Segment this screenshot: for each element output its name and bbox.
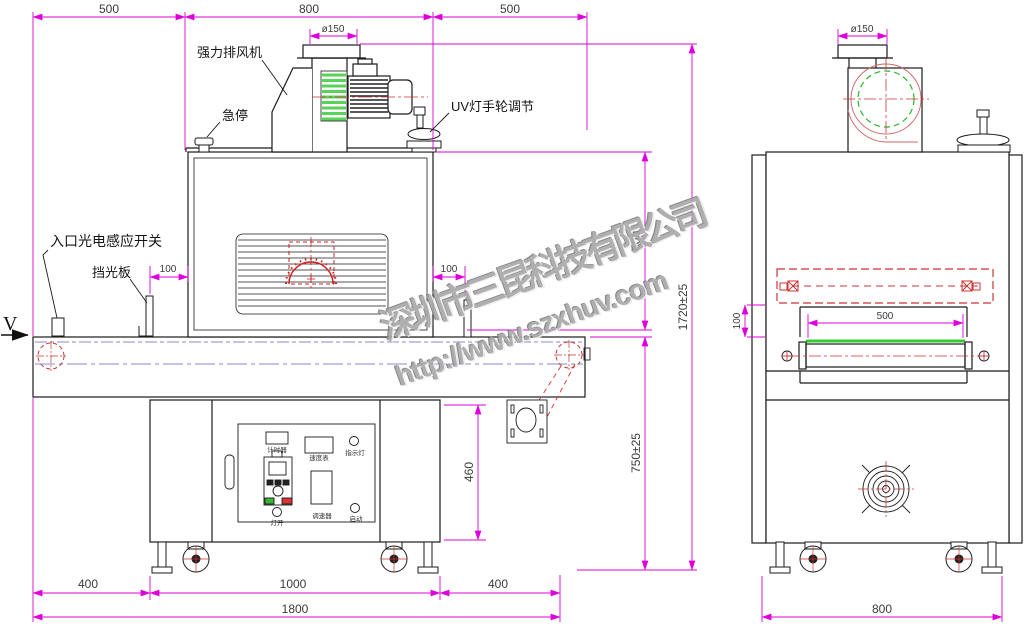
conveyor-table bbox=[33, 337, 590, 397]
dim-duct-side: ø150 bbox=[851, 24, 874, 35]
dim-side-base-width: 800 bbox=[872, 602, 892, 616]
dim-duct-front: ø150 bbox=[322, 24, 345, 35]
uv-lamp-handwheel bbox=[407, 107, 441, 152]
side-feet bbox=[770, 542, 1002, 573]
dim-top-center: 800 bbox=[299, 2, 319, 16]
label-uv-handwheel: UV灯手轮调节 bbox=[451, 99, 534, 114]
roller-bolt-left bbox=[782, 351, 792, 361]
caster-side-right bbox=[946, 542, 972, 572]
label-light-shield: 挡光板 bbox=[92, 265, 131, 280]
caster-front-right bbox=[381, 542, 407, 572]
label-speed-controller: 调速器 bbox=[312, 511, 332, 520]
light-shield-right bbox=[464, 300, 471, 337]
roller-bolt-right bbox=[979, 351, 989, 361]
label-indicator-light: 指示灯 bbox=[345, 448, 365, 457]
emergency-stop-button bbox=[195, 138, 213, 152]
drawing-canvas: 500 800 500 ø150 100 100 600 1720±25 750… bbox=[0, 0, 1024, 632]
label-exhaust-fan: 强力排风机 bbox=[197, 45, 262, 60]
dim-belt-width: 500 bbox=[877, 311, 894, 322]
direction-mark: V bbox=[1, 313, 28, 335]
control-panel bbox=[238, 424, 375, 522]
direction-letter: V bbox=[3, 313, 18, 335]
dim-shield-right: 100 bbox=[441, 264, 458, 275]
caster-side-left bbox=[800, 542, 826, 572]
dim-total-height: 1720±25 bbox=[676, 283, 690, 330]
blower-wheel bbox=[321, 71, 347, 121]
label-start: 启动 bbox=[350, 514, 364, 523]
label-lamp-switch: 灯开 bbox=[271, 518, 285, 527]
dim-lamp-to-belt: 100 bbox=[732, 312, 743, 329]
dim-base-left: 400 bbox=[78, 577, 98, 591]
side-handwheel bbox=[957, 110, 1010, 152]
dim-cabinet-height: 460 bbox=[462, 462, 476, 482]
dim-belt-height: 750±25 bbox=[629, 433, 643, 473]
front-feet bbox=[152, 542, 438, 573]
drive-motor-bracket bbox=[507, 400, 547, 443]
dim-base-center: 1000 bbox=[280, 577, 307, 591]
label-emergency-stop: 急停 bbox=[222, 108, 248, 123]
blower-housing bbox=[272, 68, 312, 152]
dim-shield-left: 100 bbox=[160, 264, 177, 275]
dim-base-right: 400 bbox=[488, 577, 508, 591]
caster-front-left bbox=[183, 542, 209, 572]
label-timer: 计时器 bbox=[267, 445, 287, 454]
entry-sensor-block bbox=[52, 318, 64, 336]
cad-drawing-uv-curing-machine: 500 800 500 ø150 100 100 600 1720±25 750… bbox=[0, 0, 1024, 632]
dim-top-right: 500 bbox=[500, 2, 520, 16]
dim-chamber-height: 600 bbox=[629, 231, 643, 251]
side-duct bbox=[832, 45, 922, 152]
dim-top-left: 500 bbox=[99, 2, 119, 16]
side-view bbox=[752, 45, 1022, 573]
label-speed-meter: 速度表 bbox=[309, 453, 329, 462]
dim-total-length: 1800 bbox=[282, 602, 309, 616]
front-view bbox=[33, 45, 590, 573]
label-entry-sensor: 入口光电感应开关 bbox=[50, 233, 162, 249]
